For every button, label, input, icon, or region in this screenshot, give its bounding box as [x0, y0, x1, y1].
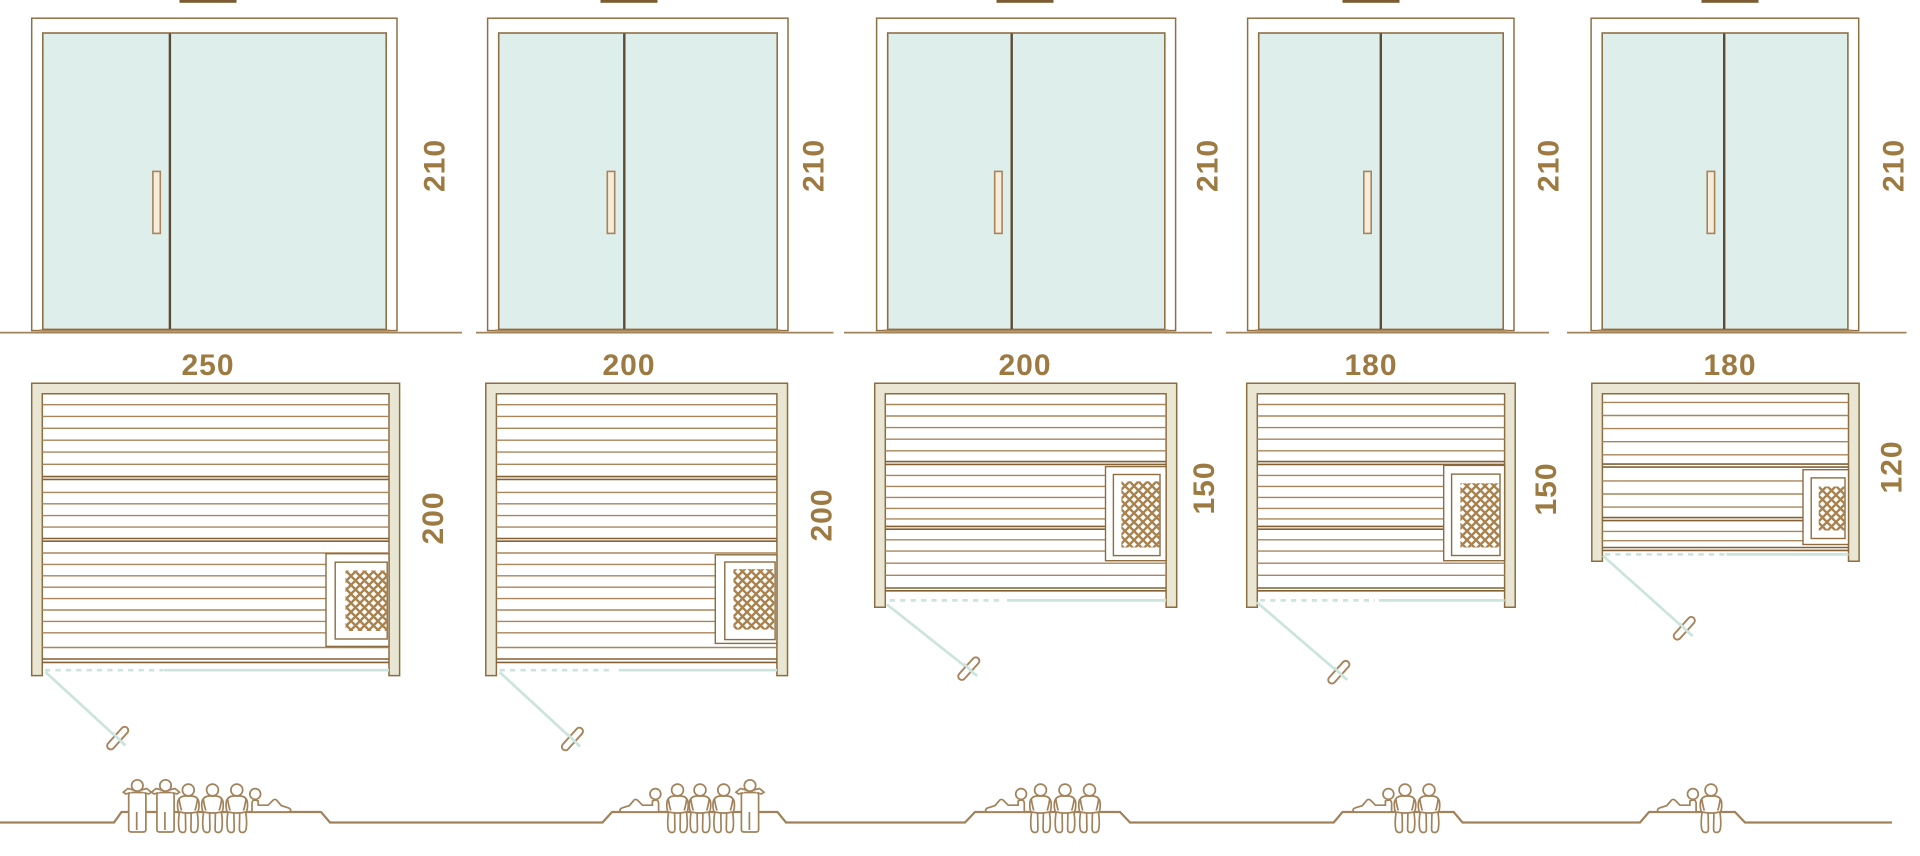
svg-text:150: 150	[1530, 462, 1563, 515]
svg-text:250: 250	[181, 349, 234, 382]
svg-text:210: 210	[419, 139, 452, 192]
svg-text:200: 200	[998, 349, 1051, 382]
svg-text:180: 180	[1344, 349, 1397, 382]
svg-text:200: 200	[806, 488, 839, 541]
svg-text:210: 210	[1878, 139, 1911, 192]
svg-text:150: 150	[1188, 461, 1221, 514]
svg-text:180: 180	[1703, 349, 1756, 382]
svg-text:210: 210	[1533, 139, 1566, 192]
svg-text:200: 200	[417, 491, 450, 544]
svg-text:120: 120	[1875, 440, 1908, 493]
svg-text:200: 200	[602, 349, 655, 382]
svg-text:210: 210	[798, 139, 831, 192]
svg-text:210: 210	[1192, 139, 1225, 192]
